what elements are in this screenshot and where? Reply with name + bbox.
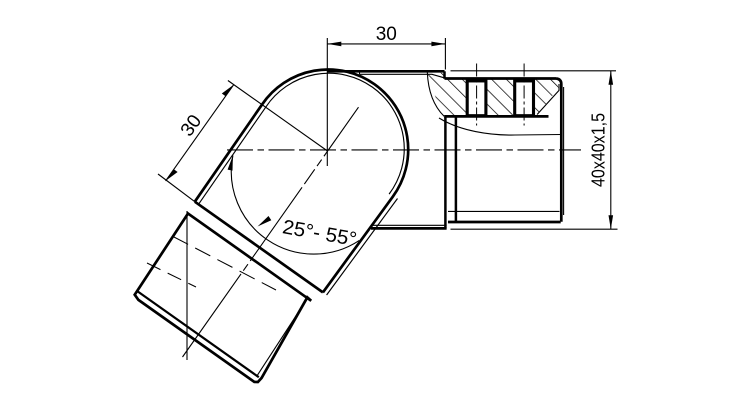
svg-text:40x40x1,5: 40x40x1,5 [589,113,609,187]
svg-text:30: 30 [376,24,397,45]
